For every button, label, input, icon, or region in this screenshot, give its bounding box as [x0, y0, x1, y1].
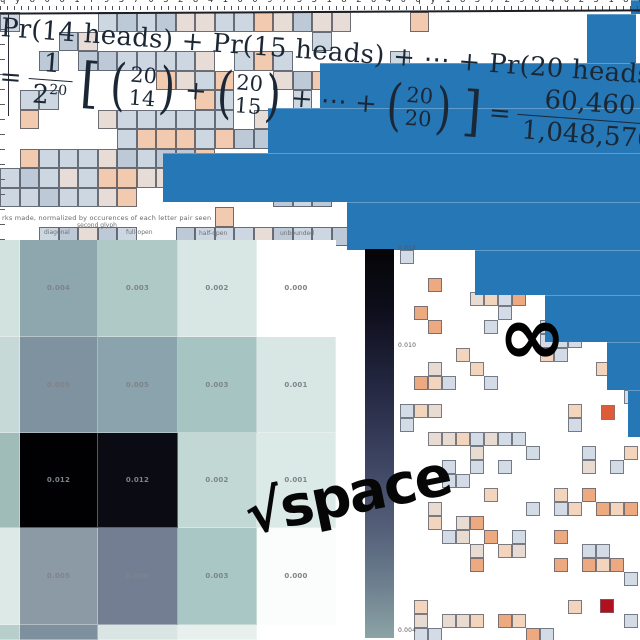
- left-axis-line: [8, 13, 9, 116]
- formula-line1: Pr(14 heads) + Pr(15 heads) + ⋯ + Pr(20 …: [0, 13, 640, 91]
- grid-cell: [582, 264, 596, 278]
- colorbar-group: 0.0120.0100.004: [0, 0, 640, 640]
- grid-cell: [610, 278, 624, 292]
- grid-cell: [624, 502, 638, 516]
- grid-cell: [554, 530, 568, 544]
- grid-cell: [98, 12, 118, 32]
- heatmap-cell: 0.005: [20, 337, 98, 433]
- left-paren: (: [385, 82, 404, 131]
- left-bracket: [: [79, 60, 101, 107]
- grid-cell: [98, 149, 118, 169]
- grid-cell: [195, 110, 215, 130]
- grid-cell: [414, 306, 428, 320]
- top-axis-labels: q y 8 0 6 1 f 9 3 7 0 5 2 8 4 1 6 0 9 7 …: [0, 0, 640, 7]
- grid-cell: [456, 614, 470, 628]
- blue-bar: [320, 63, 640, 108]
- grid-cell: [624, 320, 638, 334]
- grid-cell: [390, 51, 410, 71]
- grid-cell: [470, 516, 484, 530]
- grid-cell: [117, 188, 137, 208]
- grid-cell: [0, 188, 20, 208]
- grid-cell: [78, 149, 98, 169]
- grid-cell: [332, 129, 352, 149]
- grid-cell: [428, 320, 442, 334]
- heatmap-cell: 0.012: [98, 433, 178, 528]
- right-paren: ): [157, 65, 176, 114]
- heatmap-col-label: unbounded: [280, 230, 314, 237]
- grid-cell: [312, 188, 332, 208]
- grid-cell: [526, 502, 540, 516]
- heatmap-col-label: full-open: [126, 229, 153, 236]
- grid-cell: [137, 168, 157, 188]
- grid-cell: [273, 227, 293, 247]
- heatmap-cell: 0.002: [178, 240, 257, 337]
- grid-cell: [470, 432, 484, 446]
- grid-cell: [512, 544, 526, 558]
- grid-cell: [98, 168, 118, 188]
- grid-cell: [512, 432, 526, 446]
- grid-cell: [610, 292, 624, 306]
- grid-cell: [410, 12, 430, 32]
- grid-cell: [215, 12, 235, 32]
- grid-cell: [195, 149, 215, 169]
- grid-cell: [442, 376, 456, 390]
- grid-cell: [59, 168, 79, 188]
- heatmap-cell: 0.005: [98, 337, 178, 433]
- grid-cell: [176, 129, 196, 149]
- heatmap-cell-value: 0.005: [126, 381, 149, 389]
- grid-cell: [442, 474, 456, 488]
- top-axis-strip: q y 8 0 6 1 f 9 3 7 0 5 2 8 4 1 6 0 9 7 …: [0, 0, 640, 640]
- grid-cell: [428, 516, 442, 530]
- grid-cell: [117, 129, 137, 149]
- grid-cell: [156, 71, 176, 91]
- grid-cell: [624, 348, 638, 362]
- heatmap-cell-value: 0.005: [47, 381, 70, 389]
- grid-cell: [428, 502, 442, 516]
- grid-cell: [117, 51, 137, 71]
- left-paren: (: [215, 69, 234, 118]
- grid-cell: [20, 149, 40, 169]
- grid-cell: [20, 110, 40, 130]
- grid-cell: [20, 90, 40, 110]
- grid-cell: [312, 12, 332, 32]
- grid-cell: [414, 376, 428, 390]
- grid-cell: [610, 502, 624, 516]
- grid-cell: [624, 614, 638, 628]
- grid-cell: [470, 558, 484, 572]
- letter-pair-grid-top: [0, 0, 640, 640]
- grid-cell: [137, 149, 157, 169]
- grid-cell: [293, 168, 313, 188]
- bar-chart: [0, 0, 640, 640]
- grid-cell: [400, 250, 414, 264]
- grid-cell: [254, 51, 274, 71]
- grid-cell: [273, 71, 293, 91]
- grid-cell: [428, 404, 442, 418]
- grid-cell: [554, 292, 568, 306]
- grid-cell: [156, 129, 176, 149]
- binomial-20-14: ( 2014 ): [106, 61, 180, 114]
- grid-cell: [610, 320, 624, 334]
- grid-cell: [39, 90, 59, 110]
- grid-cell: [596, 306, 610, 320]
- heatmap-cell: [0, 240, 20, 337]
- grid-cell: [176, 149, 196, 169]
- heatmap-cell: [0, 528, 20, 625]
- grid-cell: [624, 390, 638, 404]
- grid-cell: [0, 168, 20, 188]
- left-paren: (: [109, 61, 128, 110]
- grid-cell: [470, 544, 484, 558]
- blue-bar: [628, 390, 640, 437]
- probability-formula: Pr(14 heads) + Pr(15 heads) + ⋯ + Pr(20 …: [0, 0, 640, 640]
- grid-cell: [332, 90, 352, 110]
- heatmap-cell: 0.003: [178, 528, 257, 625]
- grid-cell: [456, 432, 470, 446]
- blue-bar: [545, 295, 640, 342]
- grid-cell: [98, 188, 118, 208]
- grid-cell: [582, 460, 596, 474]
- heatmap-cell: 0.002: [178, 433, 257, 528]
- grid-cell: [78, 51, 98, 71]
- grid-cell: [470, 446, 484, 460]
- grid-cell: [78, 32, 98, 52]
- sparse-grid-right: [0, 0, 640, 640]
- grid-cell: [254, 110, 274, 130]
- top-axis-ticks: [0, 6, 640, 10]
- grid-cell: [312, 71, 332, 91]
- grid-cell: [254, 227, 274, 247]
- grid-cell: [442, 460, 456, 474]
- grid-cell: [195, 168, 215, 188]
- heatmap-cell-value: 0.005: [47, 572, 70, 580]
- grid-cell: [156, 51, 176, 71]
- grid-cell: [498, 544, 512, 558]
- blue-bar: [163, 153, 640, 202]
- grid-cell: [20, 188, 40, 208]
- grid-cell: [78, 188, 98, 208]
- grid-cell: [596, 250, 610, 264]
- grid-cell: [582, 558, 596, 572]
- right-bracket: ]: [460, 88, 482, 135]
- blue-bar: [587, 14, 636, 63]
- grid-cell: [442, 614, 456, 628]
- grid-cell: [582, 446, 596, 460]
- grid-cell: [470, 614, 484, 628]
- heatmap-cell-value: 0.000: [284, 572, 307, 580]
- grid-cell: [624, 572, 638, 586]
- heatmap-cell: [20, 625, 98, 640]
- grid-cell: [0, 12, 20, 32]
- grid-cell: [596, 558, 610, 572]
- grid-cell: [273, 51, 293, 71]
- grid-cell: [540, 334, 554, 348]
- grid-cell: [596, 502, 610, 516]
- grid-cell: [39, 51, 59, 71]
- grid-cell: [610, 362, 624, 376]
- grid-cell: [117, 12, 137, 32]
- binomial-20-15: ( 2015 ): [212, 69, 286, 122]
- grid-cell: [414, 404, 428, 418]
- blue-bar: [268, 108, 640, 153]
- grid-cell: [39, 188, 59, 208]
- grid-cell: [414, 628, 428, 640]
- grid-cell: [59, 149, 79, 169]
- grid-cell: [568, 320, 582, 334]
- grid-cell: [582, 320, 596, 334]
- colorbar-tick-label: 0.004: [398, 627, 416, 634]
- grid-cell: [582, 544, 596, 558]
- grid-cell: [293, 188, 313, 208]
- grid-cell: [293, 12, 313, 32]
- grid-cell: [59, 32, 79, 52]
- grid-cell: [484, 250, 498, 264]
- grid-cell: [117, 149, 137, 169]
- heatmap-cell: 0.012: [20, 433, 98, 528]
- grid-cell: [234, 168, 254, 188]
- grid-cell: [610, 460, 624, 474]
- heatmap-col-label: diagonal: [44, 229, 70, 236]
- grid-cell: [195, 129, 215, 149]
- grid-cell: [332, 168, 352, 188]
- grid-cell: [484, 292, 498, 306]
- grid-cell: [117, 110, 137, 130]
- grid-cell: [215, 168, 235, 188]
- heatmap-cell: 0.001: [257, 337, 336, 433]
- heatmap-cell-value: 0.003: [205, 381, 228, 389]
- grid-cell: [312, 110, 332, 130]
- grid-cell: [568, 502, 582, 516]
- heatmap-col-label: second glyph: [77, 222, 117, 229]
- grid-cell: [78, 168, 98, 188]
- grid-cell: [554, 558, 568, 572]
- grid-cell: [332, 227, 352, 247]
- grid-cell: [596, 320, 610, 334]
- sqrt-space-label: √space: [240, 443, 457, 548]
- right-paren: ): [263, 73, 282, 122]
- grid-cell: [215, 71, 235, 91]
- grid-cell: [195, 51, 215, 71]
- grid-cell: [195, 71, 215, 91]
- blue-bar: [631, 0, 640, 14]
- heatmap-cell: 0.000: [257, 240, 336, 337]
- heatmap-cell-value: 0.001: [284, 381, 307, 389]
- grid-cell: [156, 110, 176, 130]
- grid-cell: [568, 600, 582, 614]
- top-axis-line: [0, 9, 640, 14]
- grid-cell: [554, 348, 568, 362]
- heatmap-cell: [0, 625, 20, 640]
- grid-cell: [215, 110, 235, 130]
- grid-cell: [293, 227, 313, 247]
- grid-cell: [582, 250, 596, 264]
- grid-cell: [293, 90, 313, 110]
- grid-cell: [400, 418, 414, 432]
- grid-cell: [512, 530, 526, 544]
- heatmap-cell-value: 0.012: [47, 476, 70, 484]
- grid-cell: [596, 362, 610, 376]
- grid-cell: [312, 168, 332, 188]
- blue-bar: [475, 250, 640, 295]
- grid-cell: [332, 12, 352, 32]
- grid-cell: [176, 227, 196, 247]
- grid-cell: [484, 376, 498, 390]
- grid-cell: [540, 320, 554, 334]
- grid-cell: [498, 614, 512, 628]
- grid-cell: [498, 292, 512, 306]
- grid-cell: [554, 334, 568, 348]
- blue-bar: [347, 202, 640, 250]
- grid-cell: [442, 530, 456, 544]
- grid-cell: [554, 488, 568, 502]
- ellipsis-plus: + ⋯ +: [290, 83, 378, 119]
- annotations: ∞ √space: [0, 0, 640, 640]
- heatmap-cell-value: 0.001: [284, 476, 307, 484]
- heatmap-cell: 0.003: [98, 240, 178, 337]
- grid-cell: [512, 292, 526, 306]
- grid-cell: [98, 51, 118, 71]
- grid-cell: [554, 278, 568, 292]
- grid-cell: [568, 418, 582, 432]
- grid-cell: [610, 376, 624, 390]
- grid-cell: [176, 110, 196, 130]
- grid-cell: [526, 628, 540, 640]
- heatmap-cell: [98, 625, 178, 640]
- grid-cell: [456, 530, 470, 544]
- math-charts-collage: rks made, normalized by occurences of ea…: [0, 0, 640, 640]
- grid-cell: [137, 129, 157, 149]
- grid-cell: [176, 168, 196, 188]
- grid-cell: [484, 530, 498, 544]
- heatmap-cell: 0.003: [178, 337, 257, 433]
- grid-cell: [456, 348, 470, 362]
- grid-cell: [332, 110, 352, 130]
- formula-line2: = 1 220 [ ( 2014 ) + ( 2015 ) + ⋯ + ( 20…: [0, 46, 640, 164]
- grid-cell: [39, 149, 59, 169]
- grid-cell: [400, 404, 414, 418]
- grid-cell: [456, 474, 470, 488]
- binomial-20-20: ( 2020 ): [382, 81, 456, 134]
- grid-cell: [98, 110, 118, 130]
- grid-cell: [312, 129, 332, 149]
- grid-cell: [117, 168, 137, 188]
- grid-cell: [554, 502, 568, 516]
- grid-cell: [137, 51, 157, 71]
- grid-cell: [273, 188, 293, 208]
- grid-cell: [498, 460, 512, 474]
- grid-cell: [234, 227, 254, 247]
- grid-cell: [332, 71, 352, 91]
- grid-cell: [484, 320, 498, 334]
- grid-cell: [176, 71, 196, 91]
- grid-cell: [215, 227, 235, 247]
- heatmap-cell-value: 0.000: [284, 284, 307, 292]
- grid-cell: [254, 12, 274, 32]
- grid-cell: [98, 227, 118, 247]
- grid-cell: [273, 129, 293, 149]
- heatmap-cell: 0.001: [257, 433, 336, 528]
- grid-cell: [254, 168, 274, 188]
- grid-cell: [582, 306, 596, 320]
- grid-cell: [59, 188, 79, 208]
- grid-cell: [273, 168, 293, 188]
- heatmap-cell: 0.004: [20, 240, 98, 337]
- heatmap-cell: 0.000: [257, 528, 336, 625]
- grid-cell: [20, 168, 40, 188]
- right-paren: ): [434, 85, 453, 134]
- heatmap-cell: [0, 433, 20, 528]
- heatmap-cell-value: 0.012: [126, 476, 149, 484]
- grid-cell: [428, 376, 442, 390]
- grid-cell: [234, 51, 254, 71]
- grid-cell: [293, 71, 313, 91]
- grid-cell: [137, 12, 157, 32]
- grid-cell: [428, 432, 442, 446]
- heatmap-cell-value: 0.004: [47, 284, 70, 292]
- highlight-cell: [600, 599, 614, 613]
- grid-cell: [484, 488, 498, 502]
- grid-cell: [273, 12, 293, 32]
- top-axis-labels-text: q y 8 0 6 1 f 9 3 7 0 5 2 8 4 1 6 0 9 7 …: [0, 0, 640, 5]
- grid-cell: [195, 90, 215, 110]
- grid-cell: [540, 348, 554, 362]
- grid-cell: [414, 614, 428, 628]
- grid-cell: [78, 227, 98, 247]
- grid-cell: [39, 227, 59, 247]
- grid-cell: [215, 90, 235, 110]
- letterpair-heatmap: rks made, normalized by occurences of ea…: [0, 0, 640, 640]
- grid-cell: [195, 227, 215, 247]
- grid-cell: [456, 516, 470, 530]
- grid-cell: [156, 168, 176, 188]
- grid-cell: [610, 558, 624, 572]
- grid-cell: [428, 278, 442, 292]
- grid-cell: [624, 446, 638, 460]
- grid-cell: [498, 432, 512, 446]
- grid-cell: [176, 51, 196, 71]
- grid-cell: [293, 129, 313, 149]
- grid-cell: [498, 306, 512, 320]
- heatmap-cell-value: 0.002: [205, 476, 228, 484]
- blue-bar: [607, 342, 640, 390]
- grid-cell: [176, 12, 196, 32]
- grid-cell: [540, 628, 554, 640]
- grid-cell: [428, 628, 442, 640]
- heatmap-cell-value: 0.003: [205, 572, 228, 580]
- grid-cell: [117, 227, 137, 247]
- grid-cell: [234, 12, 254, 32]
- grid-cell: [215, 207, 235, 227]
- grid-cell: [156, 12, 176, 32]
- plus-sign: +: [184, 75, 208, 107]
- grid-cell: [442, 432, 456, 446]
- heatmap-cell: 0.006: [98, 528, 178, 625]
- grid-cell: [234, 129, 254, 149]
- equals-sign: =: [0, 62, 23, 94]
- fraction-1-over-2pow20: 1 220: [26, 48, 75, 113]
- grid-cell: [215, 129, 235, 149]
- grid-cell: [512, 614, 526, 628]
- highlight-cell: [601, 405, 615, 420]
- grid-cell: [137, 110, 157, 130]
- grid-cell: [526, 446, 540, 460]
- heatmap-cell-value: 0.006: [126, 572, 149, 580]
- colorbar-tick-label: 0.012: [398, 245, 416, 252]
- grid-cell: [414, 600, 428, 614]
- grid-cell: [568, 334, 582, 348]
- grid-cell: [39, 168, 59, 188]
